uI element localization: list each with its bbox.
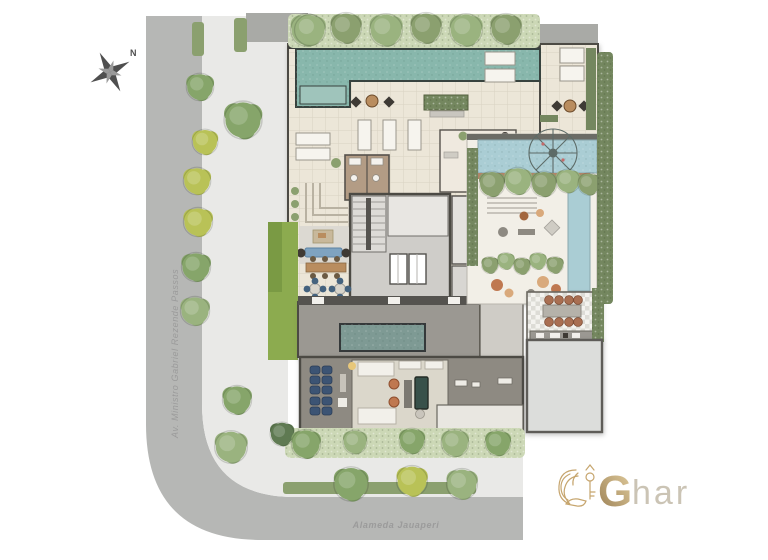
street-name-bottom: Alameda Jauaperi xyxy=(352,520,440,530)
stair-rail xyxy=(366,198,371,250)
lawn-shade xyxy=(268,222,282,292)
pouf-icon xyxy=(416,410,425,419)
planter-box xyxy=(424,95,468,117)
sculptural-tree-icon xyxy=(529,129,577,177)
street-name-left: Av. Ministro Gabriel Rezende Passos xyxy=(170,269,180,439)
bbq-appliances xyxy=(536,333,580,338)
armchair-icon xyxy=(342,249,351,258)
utility-room xyxy=(527,340,602,432)
courtyard-top-wall xyxy=(467,134,597,140)
armchair-icon xyxy=(389,379,399,389)
logo-initial: G xyxy=(598,467,632,516)
site-plan: N xyxy=(0,0,768,560)
dining-table xyxy=(543,305,581,317)
brand-logo: G har xyxy=(559,465,690,516)
logo-rest: har xyxy=(632,474,690,512)
media-unit xyxy=(404,380,412,408)
floor-lamp-icon xyxy=(348,362,356,370)
wing-hedge xyxy=(586,48,596,130)
site-plan-canvas: N xyxy=(0,0,768,560)
sofa-icon xyxy=(305,248,342,257)
hall-annex xyxy=(480,300,523,357)
entry-planter-strip xyxy=(192,22,204,56)
lounge-area xyxy=(297,226,352,300)
pool-shallow-step xyxy=(300,86,346,104)
indoor-lap-pool-texture xyxy=(340,324,425,351)
armchair-icon xyxy=(389,397,399,407)
building-core xyxy=(350,194,450,302)
plant-pot-icon xyxy=(291,213,299,221)
leisure-light-room xyxy=(437,405,523,430)
console-table xyxy=(340,374,346,392)
compass-north-label: N xyxy=(130,48,137,58)
sofa-set-bottom xyxy=(358,408,396,424)
entry-planter-strip xyxy=(234,18,247,52)
bar-table xyxy=(306,263,346,272)
plant-pot-icon xyxy=(331,158,341,168)
billiard-table xyxy=(415,377,428,409)
plant-pot-icon xyxy=(291,187,299,195)
plant-pot-icon xyxy=(291,200,299,208)
lion-key-icon xyxy=(559,465,595,506)
side-table xyxy=(338,398,347,407)
